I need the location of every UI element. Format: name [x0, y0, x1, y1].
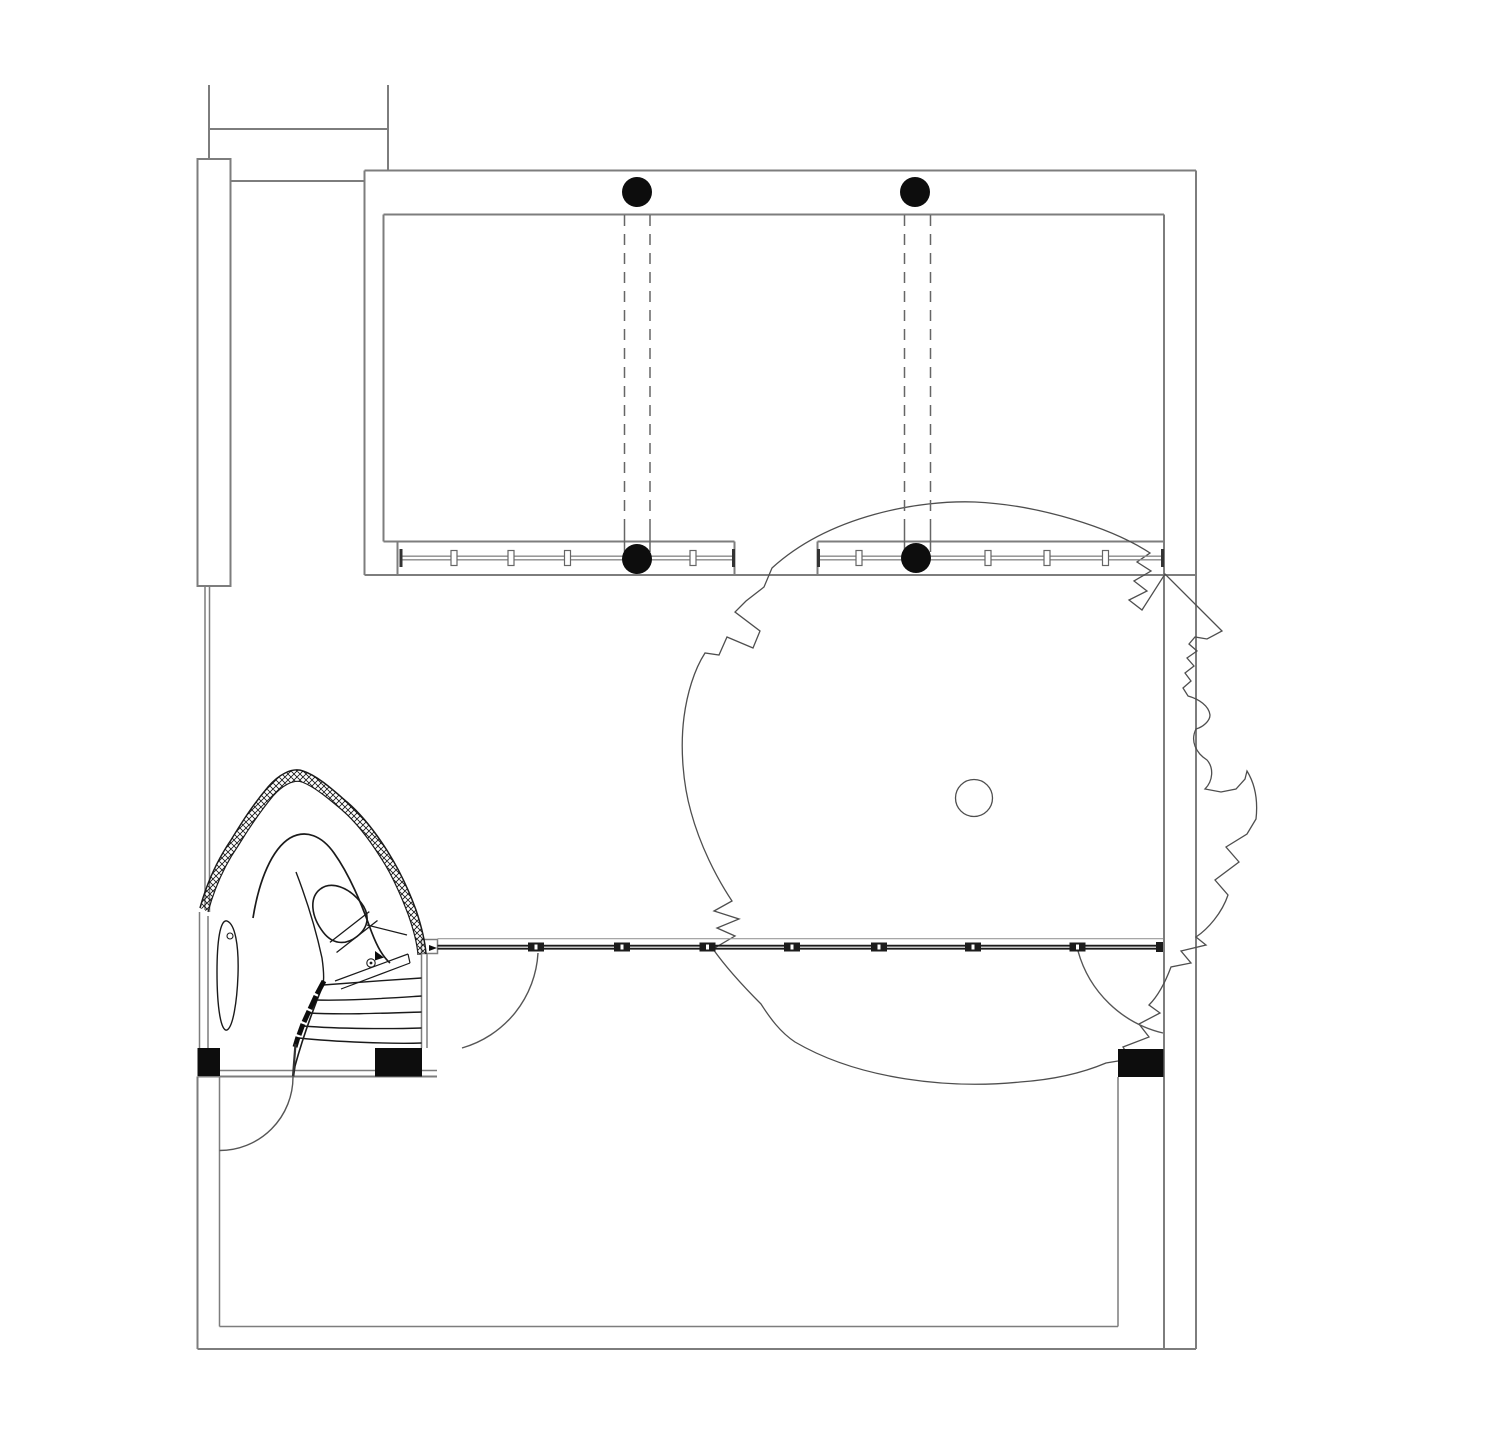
stair-hatch-band [200, 770, 426, 955]
nosing-3 [304, 1011, 309, 1022]
black-piers [198, 1048, 1164, 1077]
sliding-track-upper-left-endcap-0 [400, 549, 403, 567]
sliding-track-upper-left-marker-0 [451, 551, 457, 566]
rail-line-lower [341, 963, 410, 989]
stair-tread-2 [315, 996, 422, 1000]
track-end-tick-icon [429, 945, 437, 951]
stair-tread-4 [303, 1026, 422, 1029]
door-swing-arc-left [462, 953, 538, 1048]
sliding-track-lower-marker-slit-6 [1076, 945, 1079, 950]
column-track-left [622, 544, 652, 574]
column-top-right [900, 177, 930, 207]
tree-trunk-group [956, 780, 993, 817]
round-columns [622, 177, 931, 574]
sliding-track-upper-right-endcap-0 [817, 549, 820, 567]
nosing-1 [317, 981, 324, 994]
overhead-beams [625, 215, 931, 552]
nosing-4 [299, 1024, 303, 1035]
sliding-track-upper-left-marker-2 [565, 551, 571, 566]
floor-plan-page [0, 0, 1500, 1433]
lower-sliding-track [438, 939, 1164, 952]
black-pier-left [198, 1048, 221, 1076]
sliding-track-upper-right-marker-3 [1103, 551, 1109, 566]
toilet [300, 873, 378, 952]
stair-tread-1 [323, 978, 422, 985]
upper-sliding-tracks [400, 549, 1165, 567]
stair-start-dot-icon [370, 962, 373, 965]
tree [682, 502, 1256, 1084]
sliding-track-lower-endcap [1156, 942, 1163, 952]
black-pier-middle [375, 1048, 422, 1077]
black-pier-right [1118, 1049, 1164, 1077]
toilet-seat-line-1 [330, 912, 369, 943]
sliding-track-lower-marker-slit-5 [972, 945, 975, 950]
sliding-track-upper-right-endcap-1 [1161, 549, 1164, 567]
sliding-track-lower-marker-slit-3 [791, 945, 794, 950]
toilet-seat-line-2 [337, 920, 378, 952]
sliding-track-lower-marker-slit-2 [706, 945, 709, 950]
column-top-left [622, 177, 652, 207]
door-swing-arc-stair [220, 1077, 294, 1151]
door-swing-arc-right [1078, 951, 1163, 1033]
rail-end-cap [408, 954, 410, 963]
sliding-track-upper-right-marker-2 [1044, 551, 1050, 566]
sliding-track-upper-left-marker-1 [508, 551, 514, 566]
sliding-track-upper-right-marker-0 [856, 551, 862, 566]
stair-dome-wall [253, 834, 390, 963]
stair-pod [200, 770, 427, 1077]
left-column-shaft [198, 159, 231, 586]
tree-canopy-outline [682, 502, 1256, 1084]
floor-plan-svg [0, 0, 1500, 1433]
sliding-track-upper-left-endcap-1 [732, 549, 735, 567]
stair-tread-5 [299, 1038, 422, 1043]
sink-drain-icon [227, 933, 233, 939]
column-track-right [901, 543, 931, 573]
walls [198, 85, 1197, 1349]
stair-inner-band-curve [208, 781, 418, 955]
sliding-track-lower-marker-slit-0 [535, 945, 538, 950]
sliding-track-lower-marker-slit-4 [878, 945, 881, 950]
tree-trunk [956, 780, 993, 817]
sliding-track-upper-left-marker-3 [690, 551, 696, 566]
sliding-track-lower-marker-slit-1 [621, 945, 624, 950]
sliding-track-upper-right-marker-1 [985, 551, 991, 566]
stair-tread-3 [309, 1012, 422, 1014]
door-leaf-stair [293, 1044, 296, 1077]
